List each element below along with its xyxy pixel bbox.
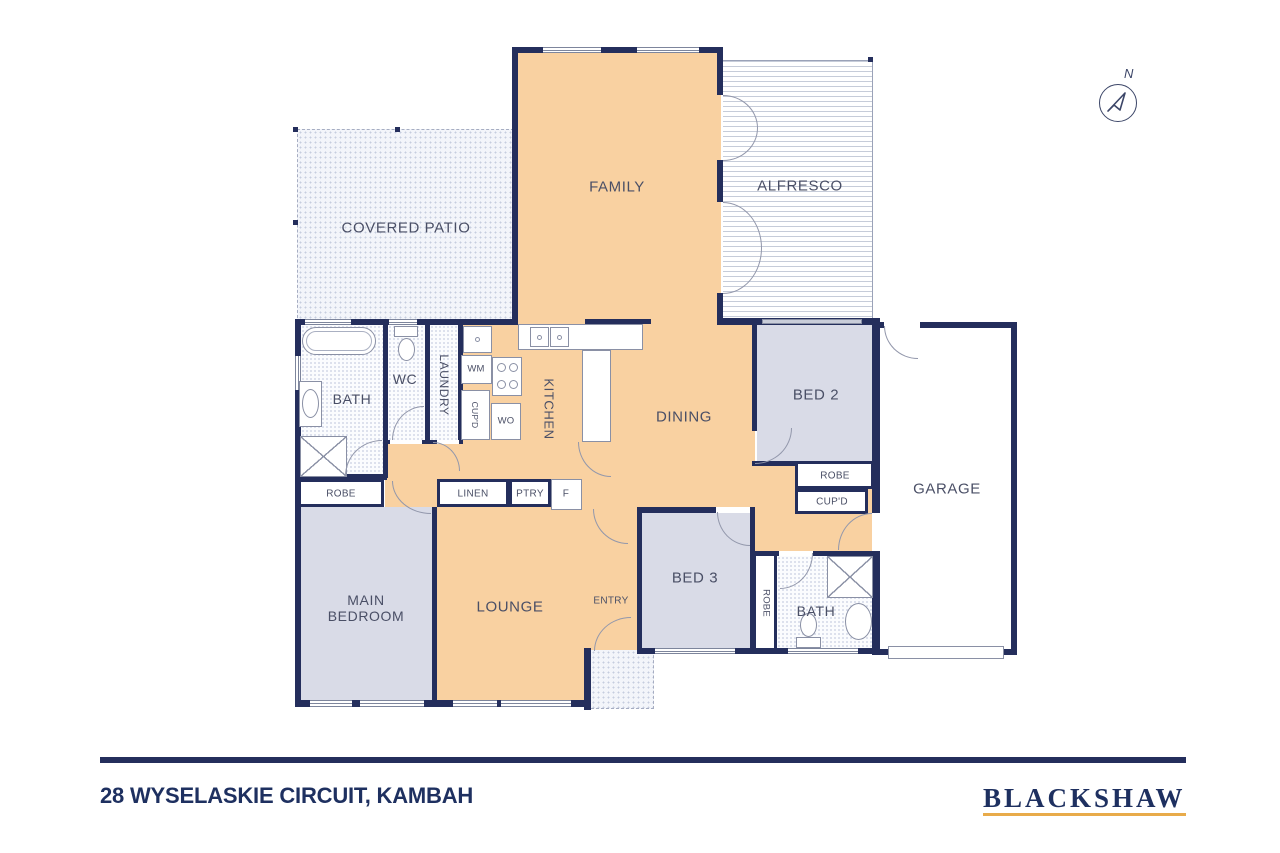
covered-patio-label: COVERED PATIO — [342, 219, 471, 236]
shower — [827, 556, 873, 598]
window — [501, 700, 571, 707]
robe-bed3-label: ROBE — [761, 589, 772, 617]
wall — [383, 322, 388, 478]
kitchen-label: KITCHEN — [542, 378, 557, 439]
window — [637, 47, 699, 53]
bathtub — [302, 327, 376, 355]
robe-main-label: ROBE — [326, 488, 356, 500]
front-porch-area — [591, 650, 654, 709]
window — [389, 319, 417, 325]
door-opening — [390, 440, 422, 444]
dining-label: DINING — [656, 408, 712, 425]
bed3-label: BED 3 — [672, 569, 718, 586]
window — [788, 648, 858, 654]
family-label: FAMILY — [589, 178, 645, 195]
window — [655, 648, 735, 654]
post — [395, 127, 400, 132]
cupd-laundry-label: CUP'D — [470, 402, 480, 429]
garage-door — [888, 646, 1004, 659]
window — [360, 700, 424, 707]
wall — [717, 160, 723, 202]
compass-icon — [1099, 84, 1137, 122]
footer-divider — [100, 757, 1186, 763]
window — [543, 47, 601, 53]
robe-bed2-label: ROBE — [820, 470, 850, 482]
shower — [300, 436, 347, 477]
wc-label: WC — [393, 371, 418, 387]
sliding-door — [762, 319, 862, 324]
cooktop — [492, 357, 522, 396]
wall — [584, 648, 591, 710]
post — [868, 57, 873, 62]
main-bedroom-label-line2: BEDROOM — [328, 608, 405, 624]
door-opening — [872, 513, 880, 551]
wall — [425, 322, 430, 442]
entry-label: ENTRY — [593, 595, 628, 607]
bath2-label: BATH — [797, 603, 836, 619]
window — [305, 319, 351, 325]
basin — [845, 603, 872, 640]
agency-logo: BLACKSHAW — [983, 783, 1186, 814]
wall — [462, 319, 500, 324]
main-bedroom-label-line1: MAIN — [328, 592, 405, 608]
floorplan-page: COVERED PATIO FAMILY ALFRESCO BATH WC LA… — [0, 0, 1280, 853]
wall — [637, 507, 642, 654]
wo-label: WO — [498, 417, 515, 428]
property-address: 28 WYSELASKIE CIRCUIT, KAMBAH — [100, 783, 473, 809]
toilet-cistern — [796, 637, 821, 648]
window — [310, 700, 352, 707]
wm-label: WM — [467, 365, 484, 376]
toilet-bowl — [398, 338, 415, 361]
garage-label: GARAGE — [913, 480, 981, 497]
kitchen-bench-side — [582, 350, 611, 442]
post — [293, 220, 298, 225]
kitchen-sink — [530, 327, 549, 347]
lounge-label: LOUNGE — [477, 598, 544, 615]
linen-label: LINEN — [458, 488, 489, 500]
agency-logo-underline — [983, 813, 1186, 816]
ptry-label: PTRY — [516, 488, 544, 500]
kitchen-sink — [550, 327, 569, 347]
wall — [432, 507, 437, 704]
wall — [512, 47, 518, 325]
main-bedroom-label: MAIN BEDROOM — [328, 592, 405, 624]
bathtub-inner — [306, 331, 372, 351]
fridge-label: F — [563, 488, 569, 500]
cupd-bed2-label: CUP'D — [816, 496, 848, 508]
window — [453, 700, 497, 707]
post — [293, 127, 298, 132]
bed2-label: BED 2 — [793, 386, 839, 403]
alfresco-label: ALFRESCO — [757, 177, 843, 194]
wall — [717, 47, 723, 95]
toilet-cistern — [394, 326, 418, 337]
north-arrow-icon — [1100, 85, 1135, 120]
wall — [752, 325, 757, 431]
compass-north-label: N — [1124, 66, 1133, 81]
bath1-label: BATH — [333, 391, 372, 407]
wall — [1011, 322, 1017, 655]
basin — [302, 389, 319, 418]
laundry-trough — [463, 326, 492, 353]
laundry-label: LAUNDRY — [437, 354, 451, 415]
